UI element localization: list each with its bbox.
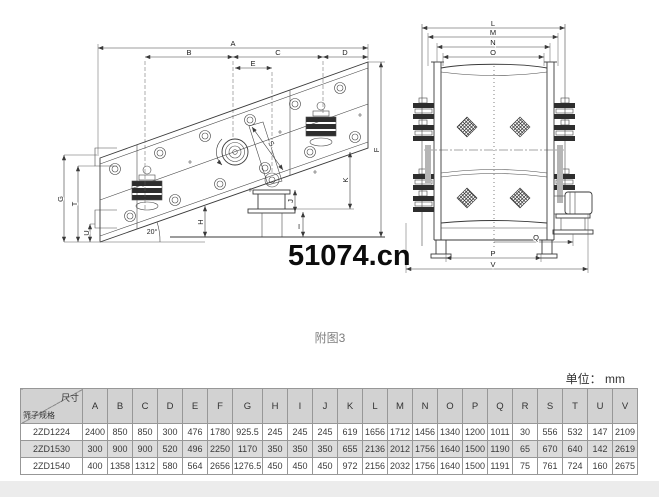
- dim-label-i: I: [298, 222, 300, 231]
- screen-body: [100, 62, 368, 242]
- value-cell-g: 1276.5: [233, 458, 263, 475]
- column-header-j: J: [313, 389, 338, 424]
- column-header-q: Q: [488, 389, 513, 424]
- value-cell-k: 972: [338, 458, 363, 475]
- value-cell-b: 1358: [108, 458, 133, 475]
- watermark-text: 51074.cn: [288, 240, 411, 273]
- table-row-2ZD1540: 2ZD15404001358131258056426561276.5450450…: [21, 458, 638, 475]
- column-header-p: P: [463, 389, 488, 424]
- column-header-d: D: [158, 389, 183, 424]
- screen-box: [424, 64, 564, 256]
- value-cell-f: 2656: [208, 458, 233, 475]
- column-header-r: R: [513, 389, 538, 424]
- dim-label-t: T: [70, 201, 79, 206]
- mesh-symbols: [457, 117, 530, 208]
- value-cell-h: 245: [263, 424, 288, 441]
- dimension-lines: [64, 44, 385, 242]
- value-cell-m: 2032: [388, 458, 413, 475]
- support-mount: [248, 190, 295, 237]
- table-row-2ZD1530: 2ZD1530300900900520496225011703503503506…: [21, 441, 638, 458]
- model-cell: 2ZD1530: [21, 441, 83, 458]
- value-cell-k: 619: [338, 424, 363, 441]
- column-header-o: O: [438, 389, 463, 424]
- column-header-b: B: [108, 389, 133, 424]
- value-cell-s: 556: [538, 424, 563, 441]
- dim-label-e: E: [250, 59, 255, 68]
- value-cell-d: 580: [158, 458, 183, 475]
- value-cell-p: 1500: [463, 441, 488, 458]
- value-cell-p: 1500: [463, 458, 488, 475]
- value-cell-v: 2109: [613, 424, 638, 441]
- value-cell-h: 350: [263, 441, 288, 458]
- dim-label-s: S: [266, 139, 276, 148]
- value-cell-t: 640: [563, 441, 588, 458]
- value-cell-q: 1191: [488, 458, 513, 475]
- dim-label-v: V: [490, 260, 495, 269]
- value-cell-l: 1656: [363, 424, 388, 441]
- column-header-u: U: [588, 389, 613, 424]
- value-cell-k: 655: [338, 441, 363, 458]
- value-cell-d: 520: [158, 441, 183, 458]
- rotation-arrow-icon: [216, 139, 222, 165]
- dim-label-c: C: [275, 48, 281, 57]
- dim-label-d: D: [342, 48, 348, 57]
- value-cell-e: 496: [183, 441, 208, 458]
- value-cell-o: 1340: [438, 424, 463, 441]
- value-cell-h: 450: [263, 458, 288, 475]
- side-view-diagram: A B C D E G T U F K H I J S 20°: [55, 20, 395, 250]
- value-cell-u: 160: [588, 458, 613, 475]
- value-cell-q: 1190: [488, 441, 513, 458]
- figure-caption: 附图3: [290, 329, 370, 346]
- dim-label-b: B: [186, 48, 191, 57]
- dim-label-o: O: [490, 48, 496, 57]
- value-cell-m: 2012: [388, 441, 413, 458]
- value-cell-f: 2250: [208, 441, 233, 458]
- value-cell-s: 761: [538, 458, 563, 475]
- corner-label-model: 筛子规格: [23, 410, 55, 421]
- corner-header-cell: 尺寸筛子规格: [21, 389, 83, 424]
- value-cell-b: 900: [108, 441, 133, 458]
- column-header-i: I: [288, 389, 313, 424]
- column-header-l: L: [363, 389, 388, 424]
- dim-label-p: P: [490, 249, 495, 258]
- value-cell-v: 2675: [613, 458, 638, 475]
- feed-end-brackets: [95, 148, 117, 228]
- column-header-v: V: [613, 389, 638, 424]
- value-cell-l: 2136: [363, 441, 388, 458]
- column-header-f: F: [208, 389, 233, 424]
- column-header-a: A: [83, 389, 108, 424]
- value-cell-c: 850: [133, 424, 158, 441]
- value-cell-s: 670: [538, 441, 563, 458]
- column-header-m: M: [388, 389, 413, 424]
- value-cell-c: 1312: [133, 458, 158, 475]
- value-cell-p: 1200: [463, 424, 488, 441]
- center-lines: [145, 61, 323, 210]
- model-cell: 2ZD1540: [21, 458, 83, 475]
- value-cell-n: 1456: [413, 424, 438, 441]
- column-header-e: E: [183, 389, 208, 424]
- dim-label-q: Q: [533, 233, 539, 242]
- spring-assembly-left: [132, 166, 162, 210]
- vibrator-motor: [216, 139, 248, 165]
- value-cell-r: 30: [513, 424, 538, 441]
- end-view-diagram: L M N O Q P V: [398, 8, 659, 293]
- value-cell-q: 1011: [488, 424, 513, 441]
- angle-label: 20°: [147, 228, 158, 236]
- value-cell-e: 476: [183, 424, 208, 441]
- column-header-t: T: [563, 389, 588, 424]
- dim-label-k: K: [341, 177, 350, 182]
- value-cell-t: 532: [563, 424, 588, 441]
- dim-label-h: H: [196, 219, 205, 224]
- column-header-k: K: [338, 389, 363, 424]
- dim-label-a: A: [230, 39, 235, 48]
- dim-label-n: N: [490, 38, 495, 47]
- value-cell-j: 350: [313, 441, 338, 458]
- value-cell-t: 724: [563, 458, 588, 475]
- model-cell: 2ZD1224: [21, 424, 83, 441]
- value-cell-g: 1170: [233, 441, 263, 458]
- value-cell-m: 1712: [388, 424, 413, 441]
- dimension-labels: A B C D E G T U F K H I J S 20°: [56, 39, 381, 236]
- dim-label-f: F: [372, 147, 381, 152]
- drive-arm: [249, 122, 282, 187]
- value-cell-i: 245: [288, 424, 313, 441]
- value-cell-e: 564: [183, 458, 208, 475]
- dimension-table-grid: 尺寸筛子规格ABCDEFGHIJKLMNOPQRSTUV2ZD122424008…: [20, 388, 638, 475]
- value-cell-o: 1640: [438, 458, 463, 475]
- value-cell-o: 1640: [438, 441, 463, 458]
- value-cell-g: 925.5: [233, 424, 263, 441]
- dim-label-m: M: [490, 28, 496, 37]
- value-cell-f: 1780: [208, 424, 233, 441]
- column-header-s: S: [538, 389, 563, 424]
- value-cell-j: 450: [313, 458, 338, 475]
- unit-label: 单位： mm: [540, 370, 625, 387]
- value-cell-v: 2619: [613, 441, 638, 458]
- value-cell-i: 350: [288, 441, 313, 458]
- dim-label-u: U: [82, 230, 91, 235]
- value-cell-i: 450: [288, 458, 313, 475]
- value-cell-u: 142: [588, 441, 613, 458]
- column-header-h: H: [263, 389, 288, 424]
- corner-label-dimension: 尺寸: [61, 391, 79, 404]
- value-cell-b: 850: [108, 424, 133, 441]
- value-cell-n: 1756: [413, 441, 438, 458]
- dim-label-j: J: [286, 199, 295, 203]
- page-bottom-margin: [0, 481, 659, 497]
- value-cell-c: 900: [133, 441, 158, 458]
- value-cell-r: 75: [513, 458, 538, 475]
- value-cell-d: 300: [158, 424, 183, 441]
- dim-label-l: L: [491, 19, 495, 28]
- dim-label-g: G: [56, 196, 65, 202]
- value-cell-a: 400: [83, 458, 108, 475]
- value-cell-u: 147: [588, 424, 613, 441]
- column-header-c: C: [133, 389, 158, 424]
- table-row-2ZD1224: 2ZD122424008508503004761780925.524524524…: [21, 424, 638, 441]
- value-cell-r: 65: [513, 441, 538, 458]
- column-header-n: N: [413, 389, 438, 424]
- spring-assembly-right: [306, 102, 336, 146]
- column-header-g: G: [233, 389, 263, 424]
- value-cell-a: 2400: [83, 424, 108, 441]
- dimension-table: 尺寸筛子规格ABCDEFGHIJKLMNOPQRSTUV2ZD122424008…: [20, 388, 638, 475]
- technical-drawing-page: A B C D E G T U F K H I J S 20°: [0, 0, 659, 497]
- value-cell-l: 2156: [363, 458, 388, 475]
- dimension-labels-right: L M N O Q P V: [490, 19, 539, 269]
- value-cell-a: 300: [83, 441, 108, 458]
- value-cell-j: 245: [313, 424, 338, 441]
- value-cell-n: 1756: [413, 458, 438, 475]
